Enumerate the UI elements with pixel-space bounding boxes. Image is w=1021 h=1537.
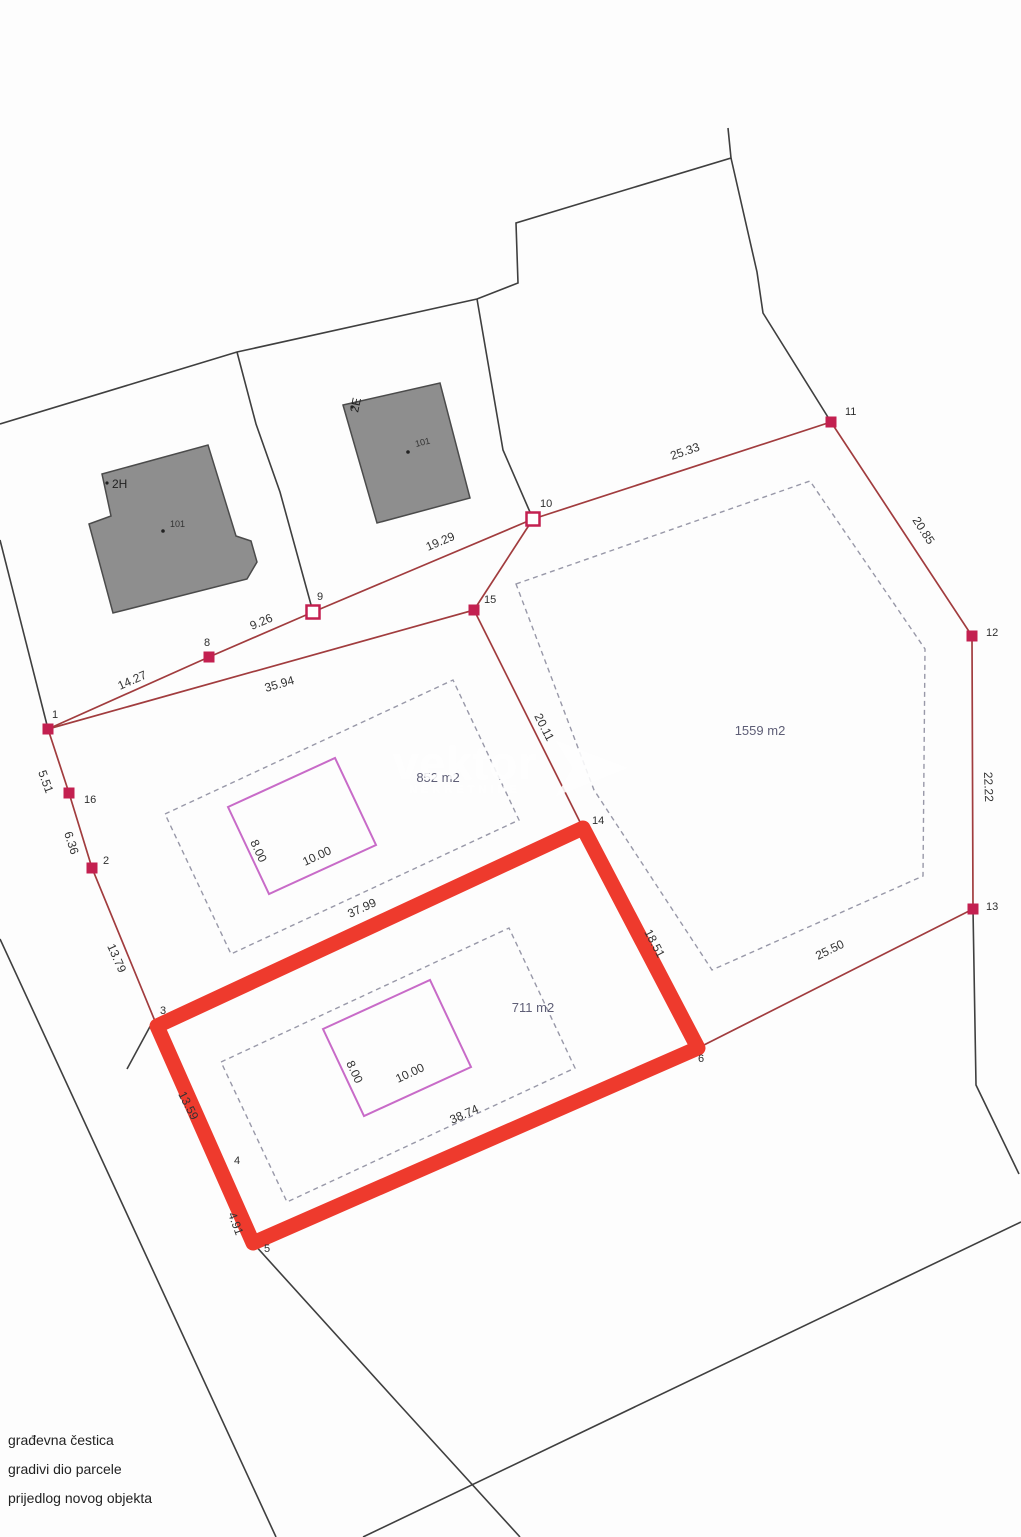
proposed-object-dimension-labels: 8.00 10.00 8.00 10.00 [247,837,426,1085]
marker-point-9 [307,606,320,619]
building-2H-ref-dot [105,481,108,484]
object-width-label: 8.00 [343,1058,366,1085]
site-plan-page: 14.27 9.26 19.29 25.33 20.85 22.22 25.50… [0,0,1021,1537]
point-label: 9 [317,591,323,603]
edge-length-label: 35.94 [263,673,296,695]
object-length-label: 10.00 [300,843,333,869]
point-label: 3 [160,1005,166,1017]
marker-point-12 [967,631,978,642]
point-label: 10 [540,498,552,510]
point-label: 6 [698,1053,704,1065]
marker-point-10 [527,513,540,526]
buildable-area-right-parcel [516,481,925,970]
marker-point-11 [826,417,837,428]
building-2H-number: 101 [170,519,185,529]
boundary-points-1-16-2-3 [48,729,157,1026]
area-label-lower-parcel: 711 m2 [512,1000,554,1015]
edge-length-label: 6.36 [61,830,82,857]
building-2E-center-dot [406,450,410,454]
cadastre-boundary-lines [0,128,1021,1537]
point-label: 11 [845,406,856,418]
object-width-label: 8.00 [247,837,270,864]
proposed-object-lower [323,980,471,1116]
building-2H-center-dot [161,529,165,533]
spur-below-point3 [127,1021,153,1069]
legend: građevna čestica gradivi dio parcele pri… [8,1432,152,1519]
edge-length-label: 19.29 [424,529,457,554]
marker-point-1 [43,724,54,735]
highlight-rectangle [157,828,698,1243]
boundary-below-point5 [253,1243,520,1537]
point-label: 5 [264,1243,270,1255]
top-right-boundary-line [731,158,831,422]
point-label: 2 [103,855,109,867]
building-2H-footprint [89,445,257,613]
point-label: 13 [986,901,998,913]
marker-point-2 [87,863,98,874]
edge-length-label: 13.79 [104,942,129,975]
divider-line-to-point10 [477,299,533,519]
marker-point-16 [64,788,75,799]
point-label: 16 [84,794,96,806]
existing-buildings [89,383,470,613]
boundary-points-15-10 [474,519,533,610]
edge-length-label: 25.33 [668,440,701,463]
edge-length-label: 14.27 [116,668,149,693]
marker-point-15 [469,605,480,616]
point-label: 4 [234,1155,240,1167]
point-label: 8 [204,637,210,649]
site-plan-drawing: 14.27 9.26 19.29 25.33 20.85 22.22 25.50… [0,0,1021,1537]
point-label: 1 [52,709,58,721]
edge-length-label: 20.85 [909,514,937,547]
buildable-area-middle-parcel [165,680,519,954]
legend-item-proposed-object: prijedlog novog objekta [8,1490,152,1506]
legend-item-buildable-part: gradivi dio parcele [8,1461,152,1477]
building-2H-code: 2H [112,477,127,491]
watermark-subtitle-text: NEKRETNINE [409,784,521,796]
proposed-object-middle [228,758,376,894]
object-length-label: 10.00 [393,1060,426,1086]
edge-length-label: 22.22 [981,772,996,803]
marker-point-8 [204,652,215,663]
left-boundary-above-point1 [0,540,48,729]
watermark-brand-text: vektor [393,737,537,789]
chevron-right-icon [556,741,627,796]
edge-length-label: 38.74 [448,1102,481,1127]
marker-point-13 [968,904,979,915]
point-label: 12 [986,627,998,639]
watermark: vektor NEKRETNINE [393,737,627,796]
edge-length-label: 5.51 [35,768,56,795]
point-label: 15 [484,594,496,606]
building-2E-code: 2E [347,396,364,413]
point-label: 14 [592,815,604,827]
edge-length-label: 25.50 [813,937,846,963]
top-boundary-line [0,128,731,424]
area-label-right-parcel: 1559 m2 [735,723,786,738]
bottom-right-boundary-line [363,1222,1021,1537]
legend-item-building-plot: građevna čestica [8,1432,152,1448]
boundary-below-point13 [973,909,1019,1174]
